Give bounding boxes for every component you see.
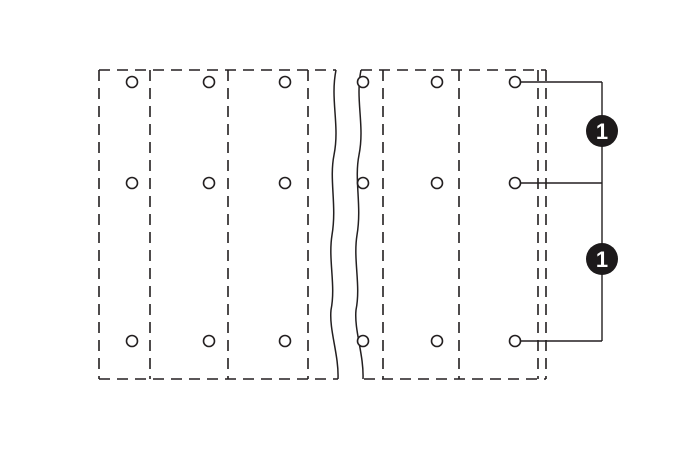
pin-hole (510, 336, 521, 347)
pin-hole (204, 178, 215, 189)
pin-hole (510, 77, 521, 88)
drilling-plan-diagram: 11 (0, 0, 697, 449)
pin-hole (127, 336, 138, 347)
pin-hole (358, 336, 369, 347)
canvas-background (0, 0, 697, 449)
pin-hole (127, 77, 138, 88)
pin-hole (280, 178, 291, 189)
pin-hole (280, 77, 291, 88)
pin-hole (358, 77, 369, 88)
pin-hole (204, 77, 215, 88)
callout-badge-label: 1 (596, 247, 608, 272)
pin-hole (204, 336, 215, 347)
pin-hole (280, 336, 291, 347)
pin-hole (432, 178, 443, 189)
drilling-plan-figure: 11 (0, 0, 697, 449)
callout-badge-label: 1 (596, 119, 608, 144)
pin-hole (127, 178, 138, 189)
pin-hole (432, 336, 443, 347)
pin-hole (358, 178, 369, 189)
pin-hole (432, 77, 443, 88)
pin-hole (510, 178, 521, 189)
